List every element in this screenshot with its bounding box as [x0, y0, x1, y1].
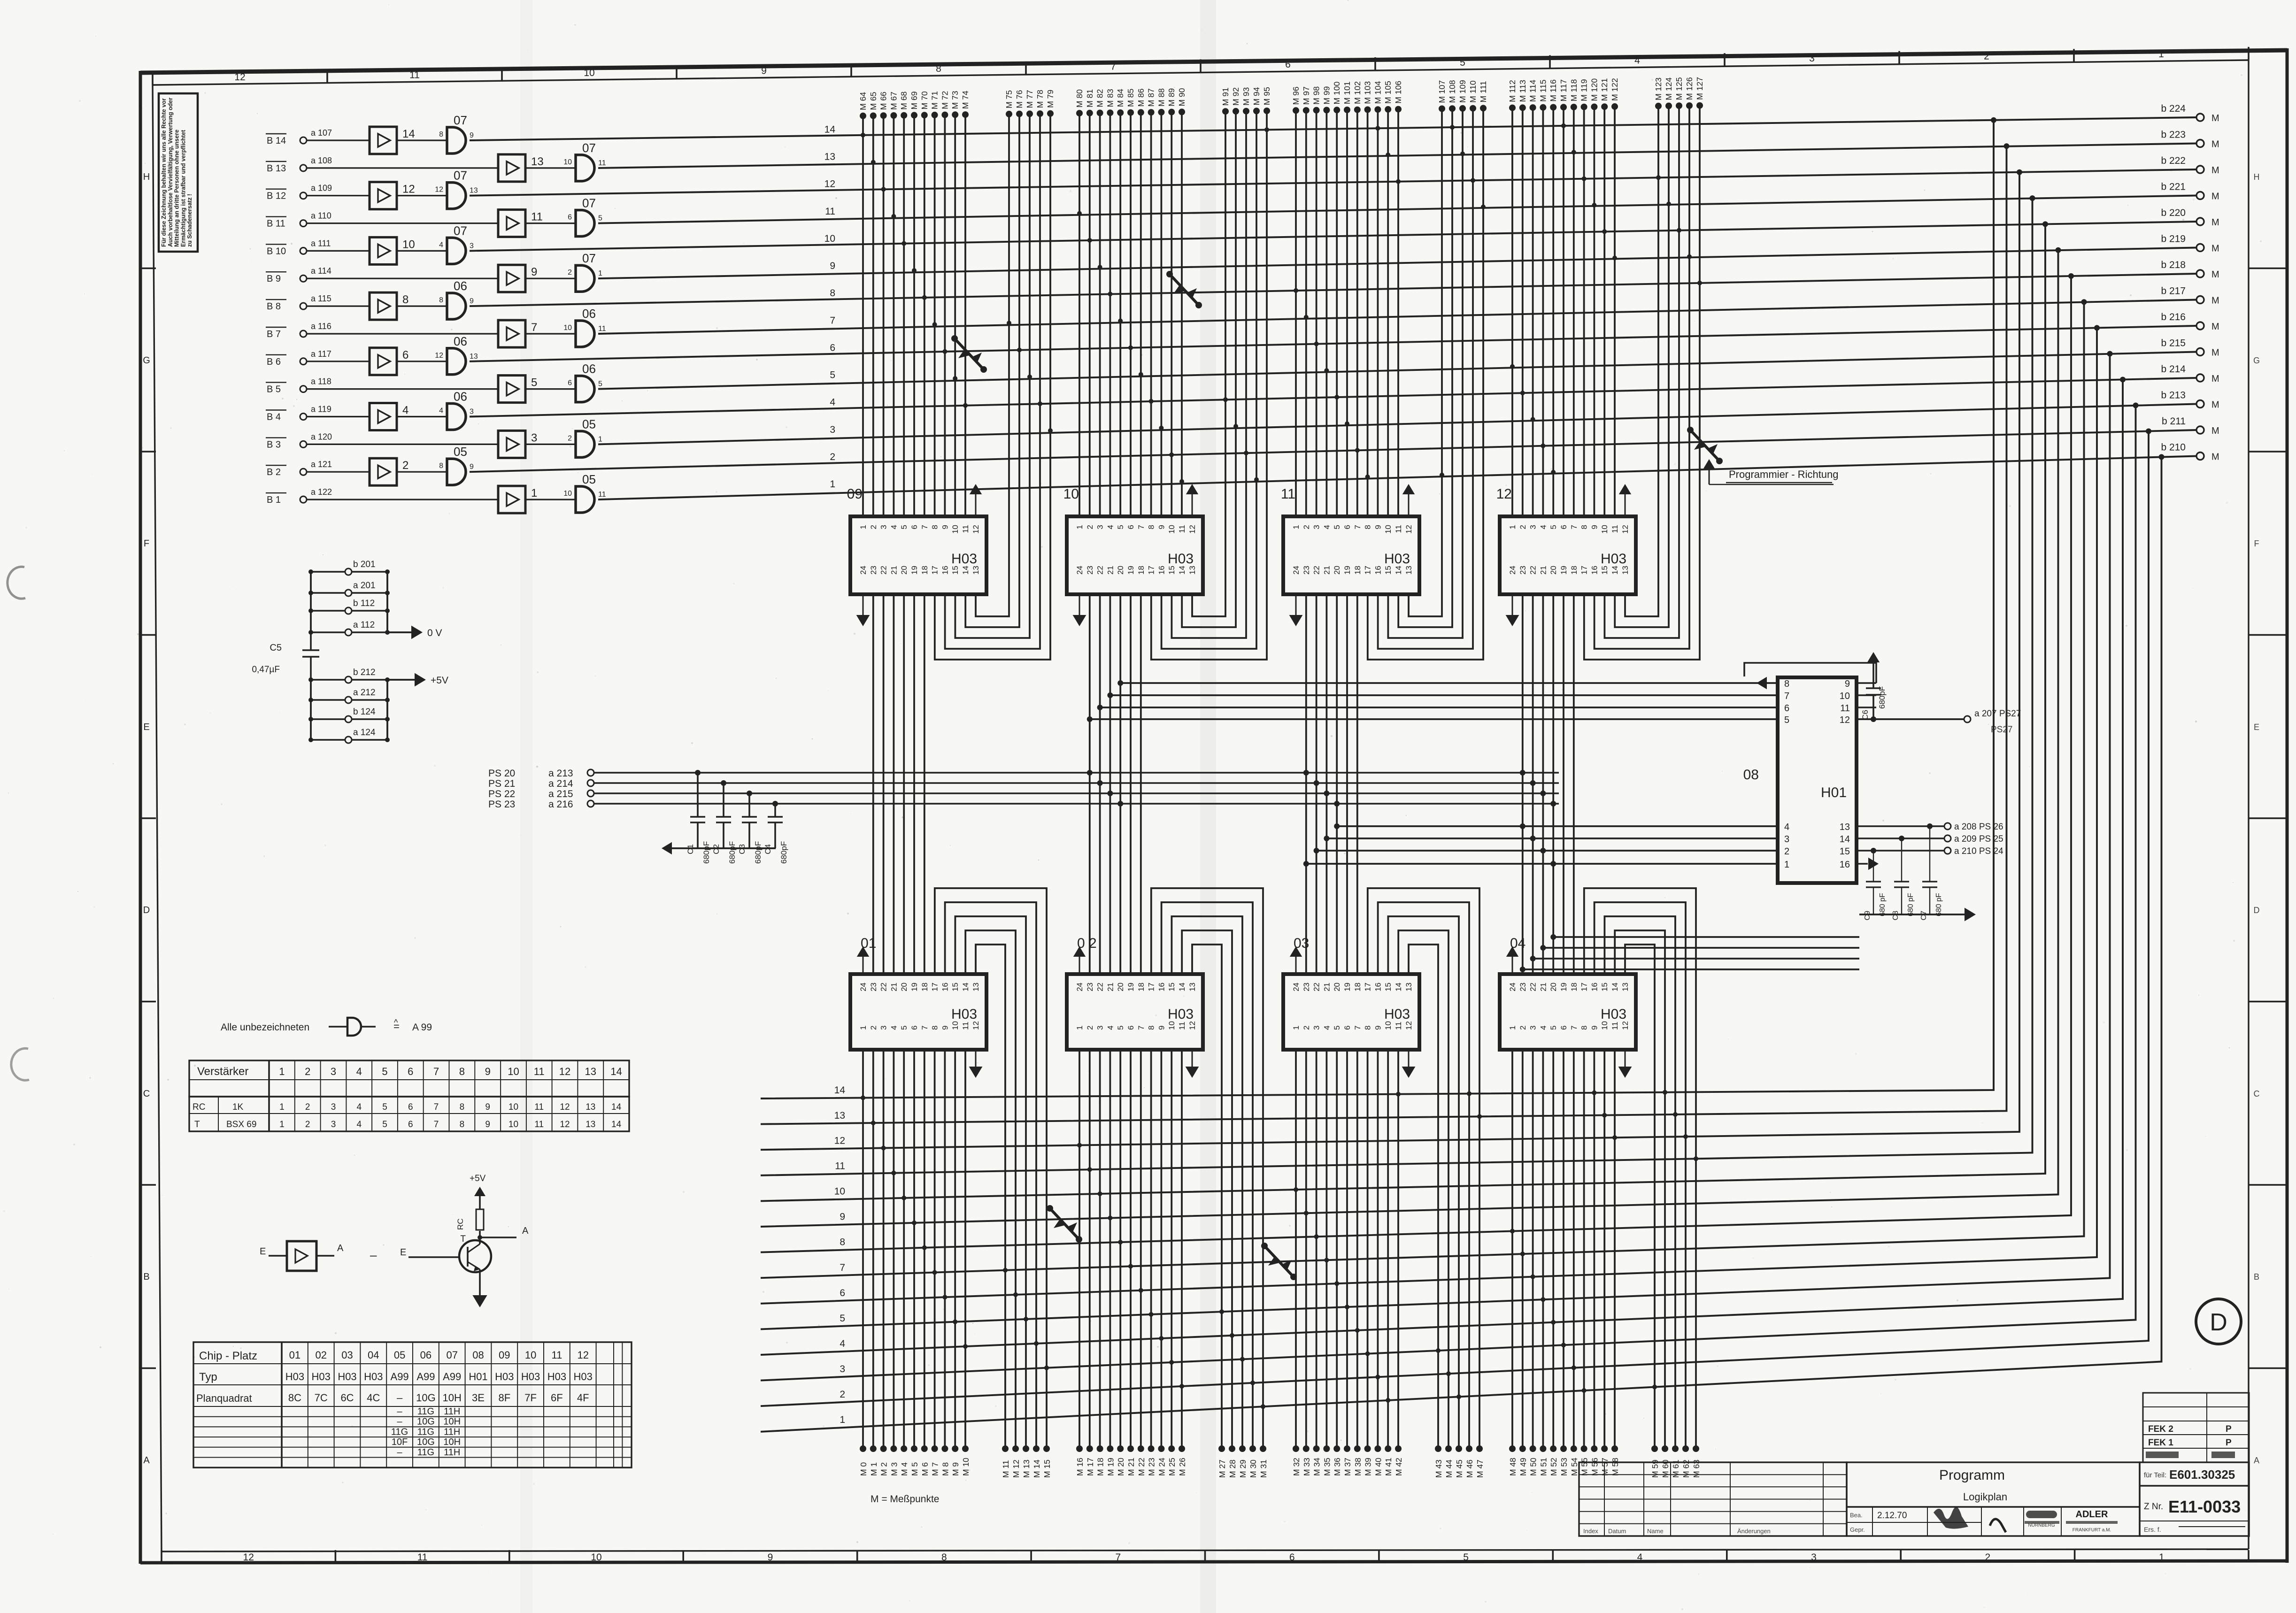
svg-text:10: 10: [951, 1021, 960, 1030]
svg-text:2: 2: [568, 434, 572, 442]
svg-text:5: 5: [1333, 1026, 1341, 1030]
svg-text:a 118: a 118: [311, 377, 331, 386]
svg-text:9: 9: [470, 131, 474, 139]
svg-text:Auch vorbehaltlose Vervielfält: Auch vorbehaltlose Vervielfältigung, Ver…: [167, 98, 174, 247]
svg-text:H03: H03: [1601, 551, 1626, 567]
svg-text:6: 6: [1289, 1552, 1295, 1563]
svg-text:M 15: M 15: [1042, 1459, 1052, 1478]
svg-text:H03: H03: [338, 1371, 356, 1383]
svg-text:23: 23: [1302, 983, 1311, 991]
svg-text:M 67: M 67: [889, 92, 898, 110]
svg-text:M 68: M 68: [899, 92, 909, 110]
svg-text:M 103: M 103: [1363, 81, 1372, 104]
svg-text:680pF: 680pF: [1878, 686, 1887, 709]
svg-text:8F: 8F: [498, 1392, 510, 1404]
svg-text:b 221: b 221: [2161, 182, 2186, 192]
svg-text:M 95: M 95: [1262, 87, 1271, 105]
svg-text:6: 6: [1559, 525, 1568, 529]
svg-text:M 101: M 101: [1342, 81, 1352, 104]
svg-text:11: 11: [825, 206, 835, 217]
svg-text:12: 12: [1188, 1021, 1197, 1030]
svg-text:a 111: a 111: [311, 238, 331, 248]
svg-text:4: 4: [1322, 525, 1331, 529]
svg-text:16: 16: [1590, 983, 1599, 991]
svg-text:A: A: [522, 1226, 529, 1236]
svg-text:D: D: [2254, 906, 2260, 915]
svg-text:M 90: M 90: [1177, 88, 1187, 106]
svg-text:9: 9: [1590, 1026, 1599, 1030]
svg-text:09: 09: [499, 1349, 510, 1361]
svg-text:7: 7: [1137, 1026, 1146, 1030]
svg-text:12: 12: [435, 352, 443, 360]
svg-text:18: 18: [1570, 566, 1579, 575]
svg-text:11: 11: [961, 525, 970, 533]
svg-text:B 13: B 13: [267, 163, 286, 174]
svg-text:17: 17: [1580, 566, 1589, 575]
svg-text:13: 13: [1404, 566, 1413, 575]
svg-text:2: 2: [1302, 1026, 1311, 1030]
svg-text:14: 14: [610, 1066, 622, 1077]
svg-text:M: M: [2211, 244, 2219, 254]
svg-text:M 110: M 110: [1468, 80, 1478, 103]
svg-text:4: 4: [840, 1338, 845, 1349]
svg-text:3: 3: [840, 1364, 845, 1375]
svg-text:19: 19: [1559, 566, 1568, 575]
svg-text:10: 10: [1384, 525, 1393, 534]
svg-text:M: M: [2211, 348, 2219, 358]
svg-text:M 57: M 57: [1600, 1458, 1610, 1476]
svg-text:19: 19: [910, 983, 919, 991]
svg-text:12: 12: [971, 1021, 980, 1030]
svg-text:3: 3: [879, 1026, 888, 1030]
svg-text:M 40: M 40: [1373, 1458, 1383, 1476]
svg-text:8: 8: [402, 293, 408, 306]
svg-text:10: 10: [1600, 1021, 1609, 1030]
svg-text:4: 4: [889, 1026, 898, 1030]
svg-text:C7: C7: [1920, 911, 1928, 921]
svg-text:M 43: M 43: [1434, 1459, 1443, 1478]
svg-text:M 75: M 75: [1004, 90, 1014, 108]
svg-text:A99: A99: [443, 1371, 461, 1383]
svg-text:18: 18: [1137, 566, 1146, 575]
svg-text:12: 12: [1496, 486, 1512, 502]
svg-text:6: 6: [408, 1120, 413, 1129]
svg-text:M 73: M 73: [950, 91, 960, 109]
svg-text:H03: H03: [285, 1371, 304, 1383]
svg-text:A99: A99: [391, 1371, 409, 1383]
svg-text:15: 15: [1167, 566, 1176, 575]
svg-text:a 209 PS 25: a 209 PS 25: [1954, 834, 2003, 844]
svg-text:B 1: B 1: [267, 495, 281, 505]
svg-text:9: 9: [940, 525, 949, 529]
svg-text:03: 03: [341, 1349, 353, 1361]
svg-text:M 69: M 69: [909, 91, 919, 109]
svg-text:06: 06: [420, 1349, 431, 1361]
svg-text:C6: C6: [1861, 710, 1870, 720]
svg-text:H03: H03: [364, 1371, 383, 1383]
svg-text:05: 05: [454, 445, 467, 459]
svg-text:4: 4: [402, 404, 408, 417]
svg-text:20: 20: [900, 983, 909, 991]
svg-text:8: 8: [459, 1066, 465, 1077]
svg-text:4: 4: [439, 241, 443, 249]
svg-text:M: M: [2211, 374, 2219, 384]
svg-text:E11-0033: E11-0033: [2168, 1497, 2241, 1516]
svg-text:23: 23: [1302, 566, 1311, 575]
svg-text:3: 3: [1096, 1026, 1105, 1030]
svg-text:5: 5: [1549, 525, 1558, 529]
svg-text:b 201: b 201: [353, 560, 376, 569]
svg-text:680pF: 680pF: [754, 841, 763, 864]
svg-text:24: 24: [1292, 566, 1301, 575]
svg-text:Datum: Datum: [1608, 1528, 1626, 1535]
svg-text:3: 3: [830, 424, 835, 435]
svg-text:20: 20: [1333, 566, 1341, 575]
svg-text:M 99: M 99: [1322, 86, 1331, 105]
svg-text:11: 11: [1610, 525, 1619, 533]
svg-text:10H: 10H: [443, 1392, 462, 1404]
svg-text:M 77: M 77: [1025, 90, 1034, 108]
svg-text:21: 21: [1322, 983, 1331, 991]
svg-text:6: 6: [1559, 1026, 1568, 1030]
svg-text:19: 19: [1126, 983, 1135, 991]
svg-text:M: M: [2211, 217, 2219, 228]
svg-text:6: 6: [840, 1288, 845, 1298]
svg-text:11: 11: [1394, 1022, 1403, 1030]
svg-text:A99: A99: [416, 1371, 435, 1383]
svg-text:05: 05: [582, 417, 596, 431]
svg-text:1: 1: [1508, 525, 1517, 529]
svg-text:M 105: M 105: [1383, 81, 1393, 104]
svg-text:11: 11: [551, 1349, 562, 1361]
svg-text:a 107: a 107: [311, 128, 332, 138]
svg-text:7F: 7F: [524, 1392, 537, 1404]
svg-text:07: 07: [454, 223, 467, 238]
svg-text:M 66: M 66: [879, 92, 888, 110]
svg-text:7: 7: [1137, 525, 1146, 529]
svg-text:06: 06: [582, 307, 596, 321]
svg-text:20: 20: [900, 566, 909, 575]
svg-text:^: ^: [394, 1018, 398, 1027]
svg-text:M 71: M 71: [930, 91, 940, 109]
svg-text:06: 06: [582, 362, 596, 376]
svg-text:B: B: [2254, 1272, 2259, 1282]
svg-text:16: 16: [1373, 983, 1382, 991]
svg-text:M: M: [2211, 269, 2219, 280]
svg-text:M 114: M 114: [1528, 79, 1538, 102]
svg-text:9: 9: [470, 297, 474, 305]
svg-text:C8: C8: [1892, 911, 1900, 921]
svg-text:M 79: M 79: [1046, 90, 1055, 108]
svg-text:7: 7: [1784, 691, 1789, 701]
svg-text:16: 16: [1157, 566, 1166, 575]
svg-text:M 30: M 30: [1248, 1459, 1258, 1478]
svg-text:M 82: M 82: [1095, 89, 1105, 108]
svg-text:B 7: B 7: [267, 329, 281, 339]
svg-text:14: 14: [1610, 983, 1619, 991]
svg-text:9: 9: [761, 66, 767, 77]
svg-text:PS 20: PS 20: [488, 768, 515, 779]
svg-text:M 85: M 85: [1126, 89, 1135, 107]
svg-text:a 120: a 120: [311, 432, 332, 441]
svg-text:9: 9: [1373, 525, 1382, 529]
svg-text:23: 23: [1086, 566, 1094, 575]
svg-text:M 89: M 89: [1167, 88, 1176, 107]
svg-text:b 211: b 211: [2162, 416, 2186, 427]
svg-text:8: 8: [936, 63, 941, 74]
svg-text:Index: Index: [1583, 1528, 1598, 1535]
svg-text:16: 16: [1157, 983, 1166, 991]
svg-text:M 28: M 28: [1228, 1459, 1237, 1478]
svg-text:a 212: a 212: [353, 688, 376, 698]
svg-text:RC: RC: [456, 1218, 465, 1230]
svg-text:M 0: M 0: [859, 1462, 868, 1476]
svg-text:10: 10: [1167, 525, 1176, 534]
svg-text:7: 7: [434, 1120, 439, 1129]
svg-text:M 108: M 108: [1448, 80, 1457, 103]
svg-text:2: 2: [305, 1102, 310, 1112]
svg-text:1: 1: [2159, 1552, 2165, 1563]
svg-text:08: 08: [472, 1349, 484, 1361]
svg-text:7: 7: [531, 321, 537, 334]
svg-text:3: 3: [1784, 834, 1789, 845]
svg-text:4: 4: [357, 1120, 362, 1129]
svg-text:M 84: M 84: [1116, 89, 1125, 107]
svg-text:1: 1: [1292, 1026, 1301, 1030]
svg-text:–: –: [370, 1248, 377, 1262]
svg-text:2: 2: [1784, 846, 1789, 857]
svg-text:M = Meßpunkte: M = Meßpunkte: [871, 1494, 939, 1505]
svg-text:5: 5: [1460, 57, 1465, 68]
svg-text:M: M: [2211, 139, 2219, 150]
svg-text:2: 2: [1518, 525, 1527, 529]
svg-text:05: 05: [582, 472, 596, 486]
svg-text:19: 19: [1343, 566, 1352, 575]
svg-text:11: 11: [835, 1161, 845, 1172]
svg-text:12: 12: [402, 183, 415, 196]
svg-text:13: 13: [1840, 822, 1850, 832]
svg-text:M 54: M 54: [1570, 1458, 1579, 1476]
svg-text:01: 01: [289, 1349, 300, 1361]
svg-text:12: 12: [234, 72, 245, 83]
svg-text:07: 07: [454, 169, 467, 183]
svg-text:M 4: M 4: [900, 1462, 909, 1476]
svg-text:M 87: M 87: [1147, 88, 1156, 107]
svg-text:a 114: a 114: [311, 266, 331, 276]
svg-text:9: 9: [485, 1102, 490, 1112]
svg-text:22: 22: [879, 566, 888, 575]
svg-text:15: 15: [1167, 983, 1176, 991]
svg-text:M 107: M 107: [1437, 80, 1447, 103]
svg-text:10: 10: [1384, 1021, 1393, 1030]
svg-text:M 109: M 109: [1458, 80, 1467, 103]
svg-text:Verstärker: Verstärker: [197, 1065, 248, 1078]
svg-text:06: 06: [454, 334, 467, 348]
svg-text:2: 2: [869, 525, 878, 529]
svg-text:M 3: M 3: [889, 1462, 899, 1476]
svg-text:PS 23: PS 23: [488, 799, 515, 810]
svg-text:5: 5: [1463, 1552, 1469, 1563]
svg-text:M 9: M 9: [951, 1462, 960, 1476]
svg-text:M 1: M 1: [869, 1462, 878, 1476]
svg-text:M 46: M 46: [1465, 1459, 1474, 1478]
svg-text:9: 9: [768, 1552, 773, 1563]
svg-text:12: 12: [824, 179, 835, 190]
svg-text:5: 5: [1116, 1026, 1125, 1030]
svg-text:M 56: M 56: [1590, 1458, 1599, 1476]
svg-text:24: 24: [1075, 983, 1084, 991]
svg-text:M 24: M 24: [1157, 1458, 1166, 1476]
svg-text:H03: H03: [951, 551, 977, 567]
svg-text:9: 9: [470, 463, 474, 471]
svg-text:680 pF: 680 pF: [1879, 893, 1887, 916]
svg-text:D: D: [143, 905, 150, 915]
svg-text:10G: 10G: [417, 1417, 435, 1427]
svg-text:M 6: M 6: [920, 1462, 930, 1476]
svg-text:3: 3: [1096, 525, 1105, 529]
svg-text:–: –: [397, 1417, 403, 1427]
svg-text:13: 13: [971, 566, 980, 575]
svg-text:18: 18: [920, 566, 929, 575]
svg-text:6: 6: [910, 1026, 919, 1030]
svg-text:+5V: +5V: [470, 1174, 486, 1183]
svg-text:1: 1: [1075, 525, 1084, 529]
svg-text:M 80: M 80: [1075, 89, 1084, 108]
svg-text:13: 13: [1621, 566, 1630, 575]
svg-text:11H: 11H: [444, 1447, 460, 1458]
svg-text:22: 22: [1529, 566, 1538, 575]
svg-text:4: 4: [889, 525, 898, 529]
svg-text:M: M: [2211, 165, 2219, 176]
svg-text:H03: H03: [495, 1371, 514, 1383]
svg-text:10: 10: [563, 158, 572, 166]
svg-text:10: 10: [1167, 1021, 1176, 1030]
svg-text:680pF: 680pF: [779, 841, 788, 864]
svg-text:13: 13: [470, 353, 478, 361]
svg-text:23: 23: [1518, 566, 1527, 575]
svg-text:FEK 1: FEK 1: [2148, 1438, 2173, 1448]
svg-text:8: 8: [1364, 1026, 1372, 1030]
svg-text:H03: H03: [547, 1371, 566, 1383]
svg-text:17: 17: [1580, 983, 1589, 991]
svg-text:Alle unbezeichneten: Alle unbezeichneten: [221, 1022, 309, 1033]
svg-text:7: 7: [1115, 1552, 1121, 1563]
svg-text:14: 14: [402, 128, 415, 140]
svg-text:H03: H03: [1384, 551, 1410, 567]
svg-text:9: 9: [1590, 525, 1599, 529]
svg-text:a 215: a 215: [548, 789, 573, 799]
svg-text:M 124: M 124: [1664, 77, 1673, 100]
svg-text:24: 24: [1075, 566, 1084, 575]
svg-text:Gepr.: Gepr.: [1850, 1526, 1865, 1533]
svg-text:21: 21: [1539, 566, 1548, 575]
svg-text:B 5: B 5: [267, 384, 281, 395]
svg-text:9: 9: [1373, 1026, 1382, 1030]
svg-text:M 72: M 72: [940, 91, 949, 109]
svg-text:A 99: A 99: [412, 1022, 432, 1033]
svg-text:8: 8: [931, 525, 940, 529]
svg-text:02: 02: [315, 1349, 326, 1361]
svg-text:M 123: M 123: [1654, 77, 1663, 100]
svg-text:a 108: a 108: [311, 156, 332, 165]
svg-text:21: 21: [1106, 566, 1115, 575]
svg-text:10: 10: [563, 490, 572, 498]
svg-text:1: 1: [279, 1066, 285, 1077]
svg-text:5: 5: [598, 380, 602, 388]
svg-text:1: 1: [2158, 49, 2164, 60]
svg-text:17: 17: [1364, 566, 1372, 575]
svg-text:H03: H03: [951, 1006, 977, 1022]
svg-text:a 214: a 214: [548, 778, 573, 789]
svg-text:M 119: M 119: [1579, 79, 1589, 101]
svg-text:5: 5: [382, 1120, 387, 1129]
svg-text:14: 14: [1178, 566, 1187, 575]
svg-text:4: 4: [1784, 822, 1789, 832]
svg-text:M 94: M 94: [1252, 87, 1261, 105]
svg-text:10: 10: [402, 238, 415, 251]
svg-text:2: 2: [869, 1026, 878, 1030]
svg-text:12: 12: [435, 186, 443, 194]
svg-text:Mitteilung an dritte Personen: Mitteilung an dritte Personen ohne unser…: [174, 130, 180, 247]
svg-text:13: 13: [1188, 566, 1197, 575]
svg-text:6: 6: [408, 1102, 413, 1112]
svg-text:15: 15: [1600, 983, 1609, 991]
svg-text:8: 8: [1580, 1026, 1589, 1030]
svg-text:M 14: M 14: [1032, 1459, 1041, 1478]
svg-text:22: 22: [1312, 983, 1321, 991]
svg-text:10: 10: [563, 324, 572, 332]
svg-text:21: 21: [1106, 983, 1115, 991]
svg-text:M 97: M 97: [1302, 86, 1311, 105]
svg-text:10: 10: [824, 233, 835, 244]
svg-text:07: 07: [582, 251, 596, 265]
svg-text:10: 10: [525, 1349, 536, 1361]
svg-text:H03: H03: [1384, 1006, 1410, 1022]
svg-text:M 113: M 113: [1518, 80, 1527, 102]
svg-text:5: 5: [1549, 1026, 1558, 1030]
svg-text:11G: 11G: [417, 1427, 434, 1437]
svg-text:a 201: a 201: [353, 581, 376, 591]
svg-text:H: H: [143, 172, 150, 182]
svg-text:M 91: M 91: [1221, 87, 1230, 106]
svg-text:M 51: M 51: [1539, 1458, 1548, 1476]
svg-text:b 222: b 222: [2161, 155, 2186, 166]
svg-text:b 124: b 124: [353, 707, 376, 717]
svg-text:1: 1: [1508, 1026, 1517, 1030]
svg-text:ADLER: ADLER: [2076, 1509, 2108, 1520]
svg-text:M 22: M 22: [1137, 1458, 1146, 1476]
svg-text:11: 11: [531, 211, 543, 223]
svg-text:B 10: B 10: [267, 246, 286, 256]
svg-text:12: 12: [559, 1066, 570, 1077]
svg-text:6: 6: [1126, 525, 1135, 529]
svg-text:17: 17: [931, 566, 940, 575]
svg-text:07: 07: [582, 141, 596, 155]
svg-text:b 112: b 112: [353, 599, 375, 608]
svg-text:b 220: b 220: [2161, 207, 2186, 218]
svg-text:10: 10: [834, 1186, 845, 1197]
svg-text:E: E: [400, 1247, 406, 1258]
svg-text:20: 20: [1116, 566, 1125, 575]
svg-text:3: 3: [470, 408, 474, 416]
svg-text:3: 3: [331, 1102, 336, 1112]
svg-text:1: 1: [840, 1414, 845, 1425]
svg-text:22: 22: [1096, 983, 1105, 991]
svg-text:680 pF: 680 pF: [1935, 893, 1943, 916]
svg-text:13: 13: [824, 152, 835, 162]
svg-text:24: 24: [1508, 983, 1517, 991]
svg-text:16: 16: [940, 566, 949, 575]
